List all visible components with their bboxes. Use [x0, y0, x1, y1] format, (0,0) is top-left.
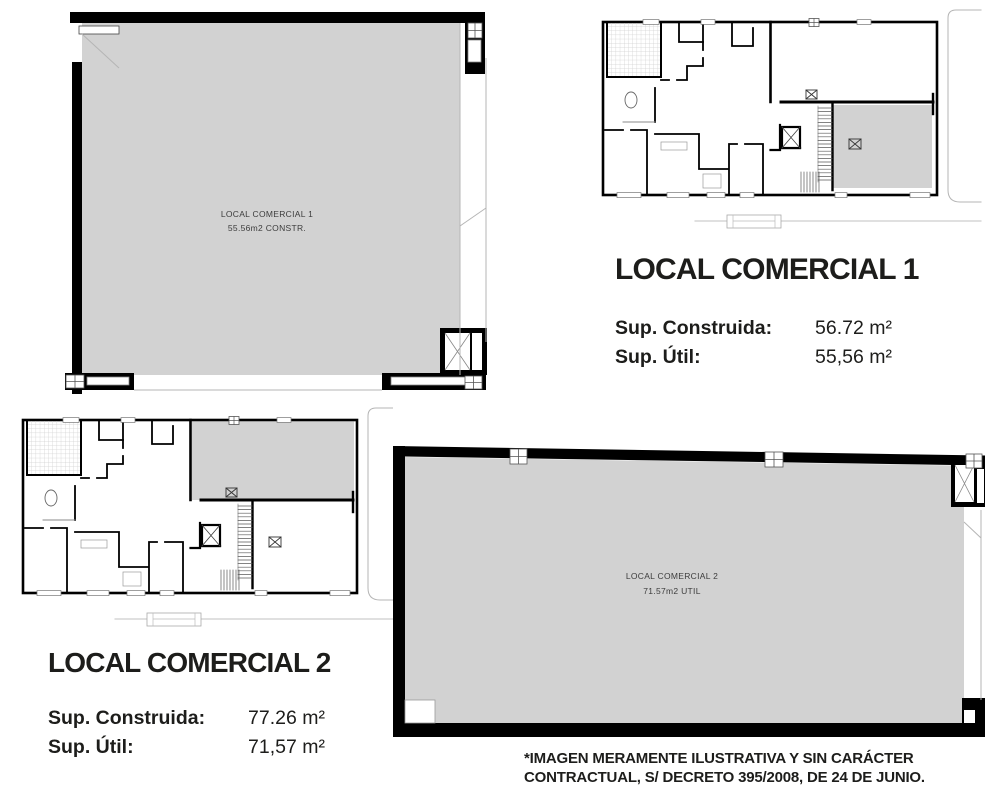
column-marker-icon	[966, 454, 982, 468]
disclaimer-line1: *IMAGEN MERAMENTE ILUSTRATIVA Y SIN CARÁ…	[524, 750, 954, 769]
disclaimer: *IMAGEN MERAMENTE ILUSTRATIVA Y SIN CARÁ…	[524, 750, 954, 787]
siteplan-local1	[588, 4, 996, 236]
column-marker-icon	[66, 375, 84, 388]
local1-floor-area	[82, 23, 460, 375]
local2-info-title: LOCAL COMERCIAL 2	[48, 648, 378, 677]
disclaimer-line2: CONTRACTUAL, S/ DECRETO 395/2008, DE 24 …	[524, 769, 954, 788]
local1-plan-label: LOCAL COMERCIAL 1	[221, 209, 313, 219]
siteplan-local2	[8, 402, 393, 637]
local1-plan-area-label: 55.56m2 CONSTR.	[228, 223, 306, 233]
highlight-local2	[192, 422, 354, 501]
local2-built-row: Sup. Construida: 77.26 m²	[48, 707, 378, 729]
highlight-local1	[833, 105, 932, 188]
local2-plan-area-label: 71.57m2 UTIL	[643, 586, 700, 596]
column-marker-icon	[765, 452, 783, 467]
floorplan-local1-large: LOCAL COMERCIAL 1 55.56m2 CONSTR.	[55, 2, 505, 404]
local2-info: LOCAL COMERCIAL 2 Sup. Construida: 77.26…	[48, 648, 378, 765]
shaft-icon	[440, 328, 487, 375]
local2-plan-label: LOCAL COMERCIAL 2	[626, 571, 718, 581]
column-marker-icon	[510, 449, 527, 464]
local1-built-row: Sup. Construida: 56.72 m²	[615, 317, 945, 339]
local2-usable-row: Sup. Útil: 71,57 m²	[48, 736, 378, 758]
shaft-icon	[955, 465, 984, 503]
local1-info-title: LOCAL COMERCIAL 1	[615, 254, 945, 285]
floorplan-local2-large: LOCAL COMERCIAL 2 71.57m2 UTIL	[388, 438, 996, 743]
local1-info: LOCAL COMERCIAL 1 Sup. Construida: 56.72…	[615, 254, 945, 375]
local1-usable-row: Sup. Útil: 55,56 m²	[615, 346, 945, 368]
page: { "plans": { "large1": { "line1": "LOCAL…	[0, 0, 996, 795]
